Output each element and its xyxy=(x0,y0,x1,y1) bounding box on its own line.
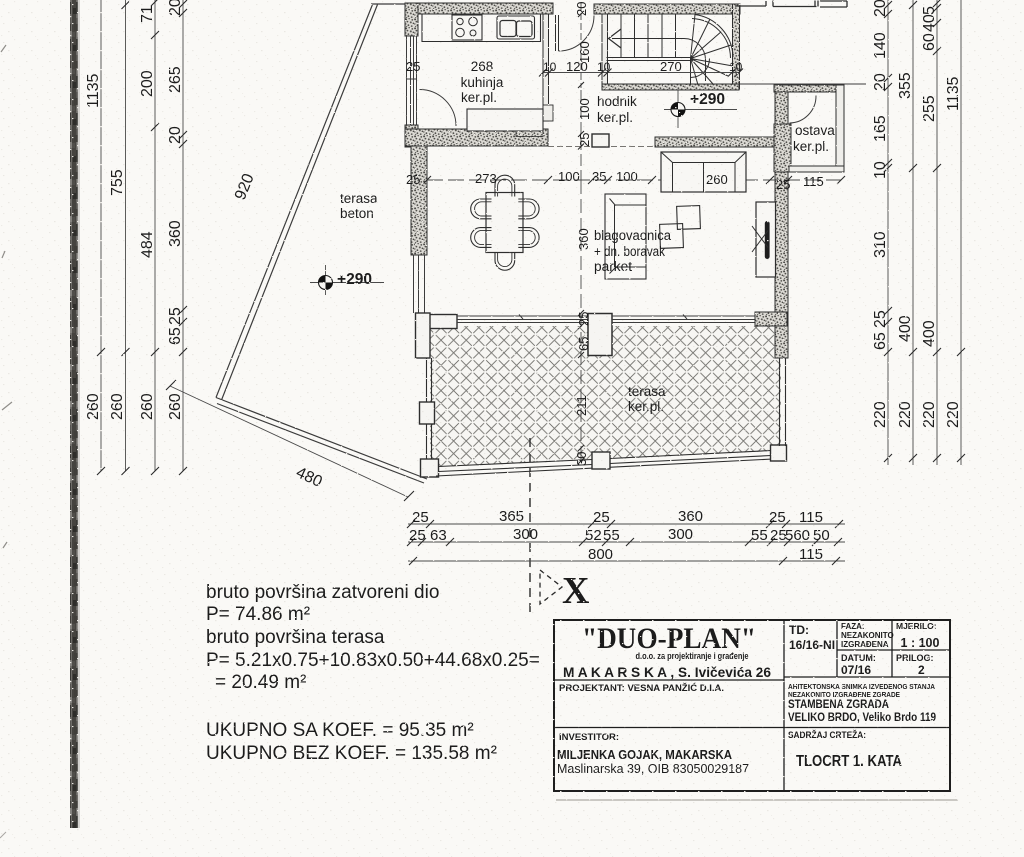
svg-text:220: 220 xyxy=(872,401,889,428)
svg-text:55: 55 xyxy=(751,527,768,544)
svg-text:UKUPNO SA KOEF. = 95.35 m²: UKUPNO SA KOEF. = 95.35 m² xyxy=(206,720,474,741)
svg-text:165: 165 xyxy=(872,115,889,142)
svg-text:25: 25 xyxy=(769,509,786,526)
svg-text:M A K A R S K A , S. Ivičevića: M A K A R S K A , S. Ivičevića 26 xyxy=(563,664,771,680)
svg-text:d.o.o. za projektiranje i građ: d.o.o. za projektiranje i građenje xyxy=(636,651,749,662)
svg-text:20: 20 xyxy=(872,0,889,17)
svg-text:VELIKO BRDO, Veliko Brdo 119: VELIKO BRDO, Veliko Brdo 119 xyxy=(788,712,936,724)
svg-text:255: 255 xyxy=(921,95,938,122)
svg-text:TD:: TD: xyxy=(789,623,809,637)
svg-text:NEZAKONITO: NEZAKONITO xyxy=(841,631,894,640)
svg-text:310: 310 xyxy=(872,231,889,258)
svg-text:16/16-NI: 16/16-NI xyxy=(789,638,835,652)
svg-text:220: 220 xyxy=(921,401,938,428)
svg-text:10: 10 xyxy=(543,60,557,74)
svg-text:273: 273 xyxy=(475,171,497,186)
svg-text:25: 25 xyxy=(412,509,429,526)
svg-text:STAMBENA ZGRADA: STAMBENA ZGRADA xyxy=(788,699,889,711)
svg-text:20: 20 xyxy=(574,2,589,16)
svg-text:25: 25 xyxy=(577,133,592,147)
svg-text:25: 25 xyxy=(406,59,420,74)
svg-text:265: 265 xyxy=(167,66,184,93)
svg-text:560: 560 xyxy=(785,527,810,544)
svg-text:TLOCRT 1. KATA: TLOCRT 1. KATA xyxy=(796,753,902,770)
svg-text:DATUM:: DATUM: xyxy=(841,653,876,663)
svg-text:115: 115 xyxy=(799,546,823,563)
svg-text:260: 260 xyxy=(85,393,102,420)
svg-text:25: 25 xyxy=(576,312,591,326)
svg-text:260: 260 xyxy=(706,172,728,187)
svg-text:52: 52 xyxy=(585,527,602,544)
svg-text:800: 800 xyxy=(588,546,613,563)
svg-text:bruto površina terasa: bruto površina terasa xyxy=(206,627,385,648)
svg-text:2: 2 xyxy=(918,663,925,677)
svg-text:35: 35 xyxy=(592,169,606,184)
svg-text:65: 65 xyxy=(167,327,184,345)
svg-text:484: 484 xyxy=(139,231,156,258)
svg-text:25: 25 xyxy=(167,307,184,325)
svg-text:260: 260 xyxy=(109,393,126,420)
svg-text:140: 140 xyxy=(872,32,889,59)
svg-text:IZGRAĐENA: IZGRAĐENA xyxy=(841,640,889,649)
svg-text:270: 270 xyxy=(660,59,682,74)
svg-text:SADRŽAJ CRTEŽA:: SADRŽAJ CRTEŽA: xyxy=(788,729,866,741)
svg-text:300: 300 xyxy=(513,526,538,543)
svg-text:PROJEKTANT: VESNA PANŽIĆ D.I.A: PROJEKTANT: VESNA PANŽIĆ D.I.A. xyxy=(559,682,724,694)
svg-text:65: 65 xyxy=(576,337,591,351)
svg-text:25: 25 xyxy=(406,172,420,187)
svg-text:100: 100 xyxy=(577,98,592,120)
svg-text:360: 360 xyxy=(576,228,591,250)
svg-text:1135: 1135 xyxy=(85,73,102,108)
svg-text:355: 355 xyxy=(897,72,914,99)
svg-text:P= 74.86 m²: P= 74.86 m² xyxy=(206,604,310,625)
svg-text:PRILOG:: PRILOG: xyxy=(896,653,934,663)
svg-text:65: 65 xyxy=(872,332,889,350)
svg-text:63: 63 xyxy=(430,527,447,544)
svg-text:400: 400 xyxy=(897,315,914,342)
svg-text:NEZAKONITO IZGRAĐENE ZGRADE: NEZAKONITO IZGRAĐENE ZGRADE xyxy=(788,690,900,699)
svg-text:ker.pl.: ker.pl. xyxy=(597,110,633,125)
svg-text:360: 360 xyxy=(678,508,703,525)
svg-text:260: 260 xyxy=(139,393,156,420)
svg-text:268: 268 xyxy=(471,59,494,74)
svg-text:25: 25 xyxy=(872,310,889,328)
svg-text:365: 365 xyxy=(499,508,524,525)
svg-text:25: 25 xyxy=(776,177,790,192)
svg-text:MILJENKA GOJAK, MAKARSKA: MILJENKA GOJAK, MAKARSKA xyxy=(557,747,733,762)
svg-text:07/16: 07/16 xyxy=(841,663,871,677)
svg-text:P= 5.21x0.75+10.83x0.50+44.68x: P= 5.21x0.75+10.83x0.50+44.68x0.25= xyxy=(206,650,540,671)
svg-text:beton: beton xyxy=(340,206,374,221)
svg-text:100: 100 xyxy=(558,169,580,184)
svg-text:20: 20 xyxy=(167,0,184,16)
svg-text:UKUPNO BEZ KOEF. = 135.58 m²: UKUPNO BEZ KOEF. = 135.58 m² xyxy=(206,743,497,764)
svg-text:10: 10 xyxy=(729,60,743,74)
svg-text:hodnik: hodnik xyxy=(597,94,637,109)
svg-text:60: 60 xyxy=(921,33,938,51)
svg-text:220: 220 xyxy=(945,401,962,428)
svg-text:360: 360 xyxy=(167,220,184,247)
svg-text:blagovaonica: blagovaonica xyxy=(594,228,671,243)
svg-text:260: 260 xyxy=(167,393,184,420)
svg-text:40: 40 xyxy=(921,14,938,32)
svg-text:211: 211 xyxy=(574,395,589,416)
svg-text:parket: parket xyxy=(594,259,632,274)
svg-text:5: 5 xyxy=(921,6,938,15)
svg-text:10: 10 xyxy=(597,60,611,74)
svg-text:160: 160 xyxy=(577,41,592,63)
svg-text:bruto površina zatvoreni dio: bruto površina zatvoreni dio xyxy=(206,582,439,603)
svg-text:25: 25 xyxy=(593,509,610,526)
svg-text:+290: +290 xyxy=(690,91,725,108)
svg-text:115: 115 xyxy=(799,509,823,526)
svg-text:ker.pl.: ker.pl. xyxy=(628,399,664,414)
svg-text:ker.pl.: ker.pl. xyxy=(461,90,497,105)
svg-text:kuhinja: kuhinja xyxy=(461,75,504,90)
svg-text:220: 220 xyxy=(897,401,914,428)
svg-text:+ dn. boravak: + dn. boravak xyxy=(594,244,665,259)
svg-text:55: 55 xyxy=(603,527,620,544)
svg-text:ker.pl.: ker.pl. xyxy=(793,139,829,154)
svg-text:71: 71 xyxy=(139,5,156,23)
svg-text:terasa: terasa xyxy=(340,191,378,206)
svg-text:terasa: terasa xyxy=(628,384,666,399)
svg-text:10: 10 xyxy=(872,161,889,179)
svg-text:200: 200 xyxy=(139,70,156,97)
svg-text:100: 100 xyxy=(616,169,638,184)
svg-text:INVESTITOR:: INVESTITOR: xyxy=(559,732,619,743)
svg-text:300: 300 xyxy=(668,526,693,543)
svg-text:MJERILO:: MJERILO: xyxy=(896,621,937,631)
svg-text:1 : 100: 1 : 100 xyxy=(901,636,940,650)
svg-text:= 20.49 m²: = 20.49 m² xyxy=(215,672,306,693)
svg-text:Maslinarska 39, OIB 8305002918: Maslinarska 39, OIB 83050029187 xyxy=(557,761,749,776)
svg-text:755: 755 xyxy=(109,169,126,196)
svg-text:30: 30 xyxy=(574,452,589,466)
svg-text:1135: 1135 xyxy=(945,76,962,111)
svg-text:+290: +290 xyxy=(337,271,372,288)
svg-text:115: 115 xyxy=(803,174,824,189)
svg-text:FAZA:: FAZA: xyxy=(841,622,865,631)
svg-text:ostava: ostava xyxy=(795,123,835,138)
svg-text:25: 25 xyxy=(409,527,426,544)
svg-text:50: 50 xyxy=(813,527,830,544)
svg-text:400: 400 xyxy=(921,320,938,347)
svg-text:X: X xyxy=(562,570,589,612)
svg-text:20: 20 xyxy=(167,126,184,144)
svg-text:20: 20 xyxy=(872,73,889,91)
